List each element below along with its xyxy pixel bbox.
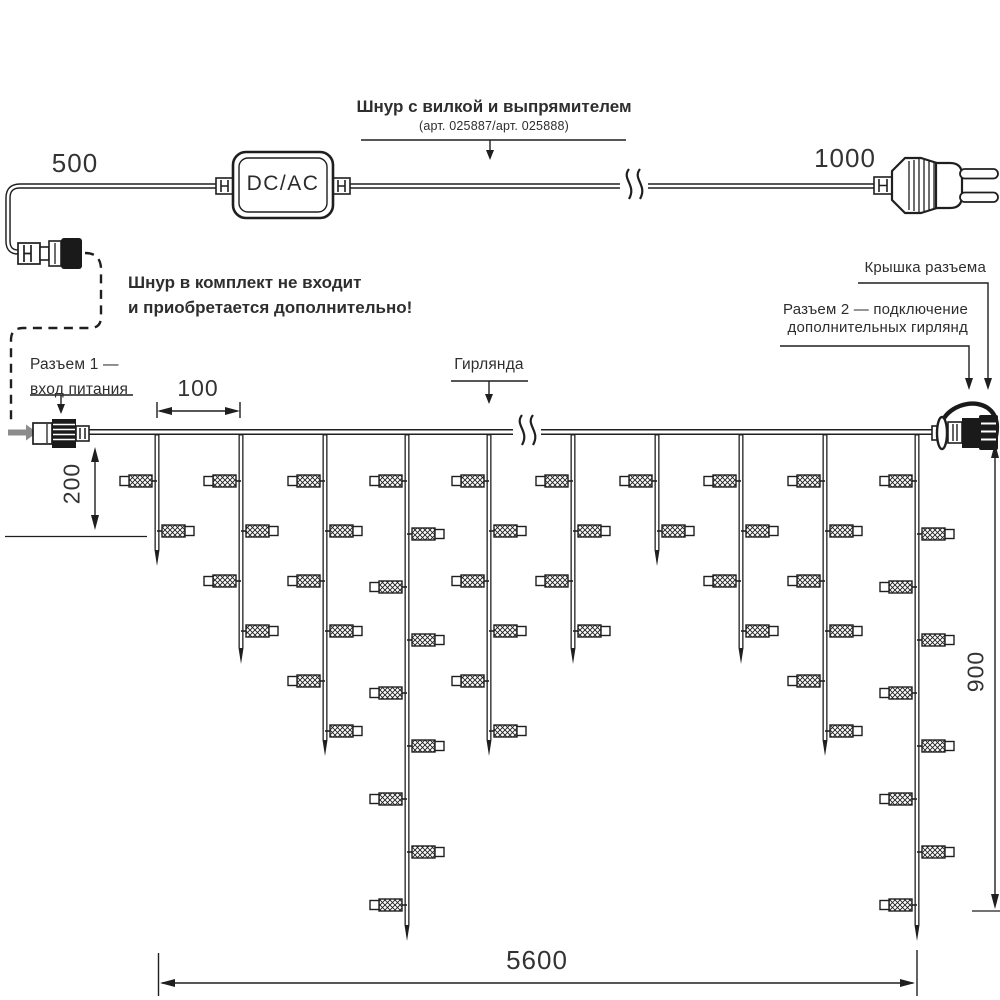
- lamp-body: [830, 525, 853, 537]
- lamp-cap: [945, 742, 954, 751]
- cord-connector: [18, 238, 82, 269]
- note-line1: Шнур в комплект не входит: [128, 273, 361, 293]
- lamp-body: [922, 634, 945, 646]
- dim-5600-label: 5600: [497, 945, 577, 976]
- lamp-cap: [601, 527, 610, 536]
- lamp-cap: [452, 477, 461, 486]
- garland-label-leader: [451, 381, 528, 404]
- lamp-cap: [204, 477, 213, 486]
- lamp-cap: [945, 636, 954, 645]
- dim-100: [157, 402, 240, 418]
- lamp-body: [746, 525, 769, 537]
- diagram-stage: 500 1000 Шнур с вилкой и выпрямителем (а…: [0, 0, 1000, 1000]
- cap-label-leader: [858, 283, 992, 390]
- lamp-cap: [788, 577, 797, 586]
- lamp-body: [922, 740, 945, 752]
- lamp-cap: [435, 848, 444, 857]
- lamp-cap: [370, 901, 379, 910]
- lamp-cap: [370, 477, 379, 486]
- lamp-cap: [204, 577, 213, 586]
- note-line2: и приобретается дополнительно!: [128, 298, 412, 318]
- lamp-cap: [353, 627, 362, 636]
- lamp-cap: [945, 530, 954, 539]
- lamp-body: [461, 575, 484, 587]
- lamp-body: [494, 525, 517, 537]
- lamp-cap: [370, 689, 379, 698]
- lamp-cap: [880, 901, 889, 910]
- lamp-cap: [435, 742, 444, 751]
- lamp-cap: [353, 527, 362, 536]
- power-cord-wire: [8, 186, 878, 252]
- lamp-body: [412, 634, 435, 646]
- lamp-body: [797, 575, 820, 587]
- lamp-body: [713, 575, 736, 587]
- lamp-body: [330, 525, 353, 537]
- lamp-cap: [704, 577, 713, 586]
- lamp-body: [379, 581, 402, 593]
- lamp-body: [797, 675, 820, 687]
- lamp-body: [830, 725, 853, 737]
- lamp-cap: [517, 627, 526, 636]
- lamp-body: [330, 725, 353, 737]
- lamp-body: [545, 475, 568, 487]
- dim-100-label: 100: [168, 375, 228, 402]
- lamp-cap: [704, 477, 713, 486]
- lamp-body: [246, 525, 269, 537]
- lamp-cap: [269, 527, 278, 536]
- connector2-label-line1: Разъем 2 — подключение: [700, 301, 968, 318]
- converter-label: DC/AC: [239, 172, 327, 196]
- lamp-body: [213, 475, 236, 487]
- lamp-body: [889, 793, 912, 805]
- lamp-body: [545, 575, 568, 587]
- dim-500-label: 500: [40, 148, 110, 179]
- lamp-body: [889, 687, 912, 699]
- lamp-body: [889, 899, 912, 911]
- lamp-body: [162, 525, 185, 537]
- lamp-cap: [269, 627, 278, 636]
- lamp-body: [629, 475, 652, 487]
- lamp-body: [379, 793, 402, 805]
- lamp-cap: [452, 677, 461, 686]
- lamp-body: [213, 575, 236, 587]
- lamp-cap: [120, 477, 129, 486]
- lamp-body: [129, 475, 152, 487]
- lamp-body: [461, 675, 484, 687]
- lamp-body: [379, 687, 402, 699]
- lamp-cap: [517, 527, 526, 536]
- lamp-cap: [769, 627, 778, 636]
- lamp-body: [412, 528, 435, 540]
- lamp-cap: [370, 583, 379, 592]
- lamp-cap: [353, 727, 362, 736]
- lamp-body: [578, 625, 601, 637]
- lamp-cap: [853, 727, 862, 736]
- connector1-label-line2: вход питания: [30, 381, 128, 399]
- lamp-cap: [435, 636, 444, 645]
- lamp-body: [461, 475, 484, 487]
- lamp-cap: [288, 677, 297, 686]
- lamp-body: [297, 675, 320, 687]
- cord-label-leader: [361, 140, 626, 160]
- lamp-cap: [620, 477, 629, 486]
- cord-article-label: (арт. 025887/арт. 025888): [344, 119, 644, 133]
- connector2-label-line2: дополнительных гирлянд: [700, 319, 968, 336]
- lamp-cap: [288, 477, 297, 486]
- lamp-body: [494, 625, 517, 637]
- lamp-cap: [517, 727, 526, 736]
- lamp-cap: [880, 477, 889, 486]
- dim-1000-label: 1000: [805, 143, 885, 174]
- dim-200-label: 200: [59, 454, 86, 514]
- lamp-body: [412, 740, 435, 752]
- lamp-cap: [288, 577, 297, 586]
- lamp-cap: [435, 530, 444, 539]
- lamp-body: [379, 899, 402, 911]
- lamp-body: [713, 475, 736, 487]
- lamp-body: [379, 475, 402, 487]
- lamp-cap: [685, 527, 694, 536]
- lamp-body: [889, 475, 912, 487]
- lamp-body: [578, 525, 601, 537]
- lamp-body: [297, 475, 320, 487]
- lamp-cap: [452, 577, 461, 586]
- lamp-cap: [853, 627, 862, 636]
- lamp-body: [246, 625, 269, 637]
- lamp-cap: [536, 477, 545, 486]
- cord-break-symbol: [620, 168, 648, 202]
- lamp-body: [797, 475, 820, 487]
- lamp-body: [297, 575, 320, 587]
- lamp-cap: [788, 677, 797, 686]
- lamp-cap: [601, 627, 610, 636]
- lamp-body: [412, 846, 435, 858]
- lamp-cap: [185, 527, 194, 536]
- lamp-cap: [370, 795, 379, 804]
- lamp-cap: [945, 848, 954, 857]
- lamp-cap: [769, 527, 778, 536]
- lamp-body: [922, 846, 945, 858]
- lamp-body: [494, 725, 517, 737]
- connector2-leader: [780, 346, 973, 390]
- cap-label: Крышка разъема: [786, 259, 986, 276]
- lamp-cap: [536, 577, 545, 586]
- lamp-cap: [880, 795, 889, 804]
- input-connector: [8, 419, 89, 448]
- garland-break-symbol: [513, 414, 541, 448]
- garland-label: Гирлянда: [429, 356, 549, 374]
- connector1-label-line1: Разъем 1 —: [30, 356, 119, 374]
- lamp-body: [746, 625, 769, 637]
- lamp-body: [830, 625, 853, 637]
- power-plug: [874, 158, 998, 213]
- lamp-cap: [853, 527, 862, 536]
- lamp-cap: [880, 583, 889, 592]
- lamp-body: [662, 525, 685, 537]
- output-connector: [932, 404, 998, 450]
- lamp-cap: [788, 477, 797, 486]
- dim-900-label: 900: [963, 642, 990, 702]
- cord-label: Шнур с вилкой и выпрямителем: [344, 97, 644, 117]
- lamp-body: [922, 528, 945, 540]
- lamp-cap: [880, 689, 889, 698]
- lamp-body: [889, 581, 912, 593]
- icicle-drops: [120, 434, 954, 941]
- lamp-body: [330, 625, 353, 637]
